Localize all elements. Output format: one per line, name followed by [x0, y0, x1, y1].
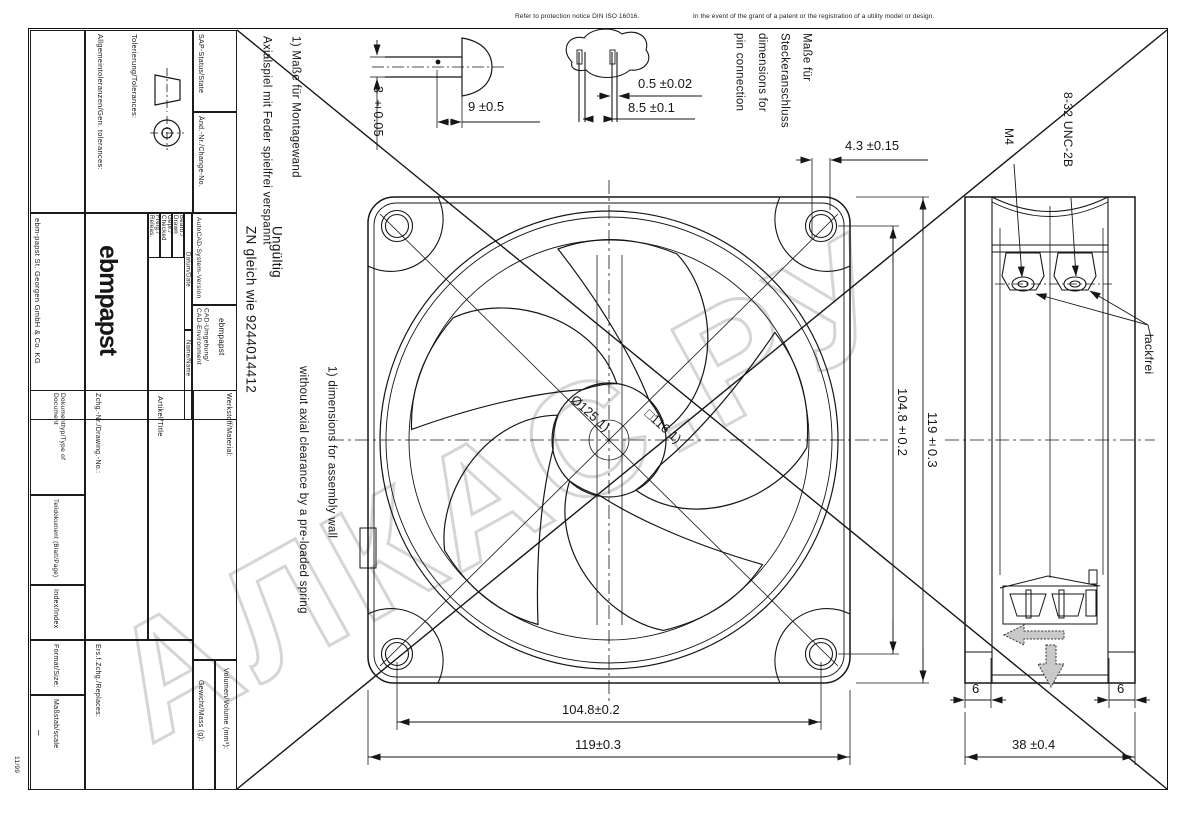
article-label: Artikel/Title [156, 396, 165, 466]
part-doc-label: Teildokument (Blatt/Page) [52, 499, 59, 583]
dim-pin-offset: 4.3 ±0.15 [845, 138, 899, 153]
label-paint-free: lackfrei [1142, 334, 1156, 394]
date-label: Datum/Date [185, 252, 191, 296]
note-connector: Maße für Steckeranschluss dimensions for… [728, 33, 818, 183]
change-no-label: Änd.-Nr./Change-No. [197, 116, 204, 211]
dim-hole-pitch-vertical: 104.8±0.2 [895, 388, 910, 548]
gen-tolerances-label: Allgemeintoleranzen/Gen. tolerances: [96, 34, 105, 194]
dim-hole-pitch-horizontal: 104.8±0.2 [562, 702, 620, 717]
format-label: Format/Size: [52, 644, 59, 692]
volume-label: Volumen/Volume (mm³): [222, 668, 229, 768]
mass-label: Gewicht/Mass (g): [197, 680, 204, 770]
drawing-sheet: АЛКАС.РУ [0, 0, 1200, 820]
label-thread-m4: M4 [1002, 128, 1016, 166]
checked-label: Gepr./ Checked [160, 215, 172, 259]
released-label: Freig./ Releas. [148, 215, 160, 259]
dim-screw-len: 9 ±0.5 [468, 99, 504, 114]
company-name: ebm-papst St. Georgen GmbH & Co. KG [33, 218, 42, 418]
tb-empty-cell [30, 30, 85, 213]
dim-size-vertical: 119±0.3 [925, 412, 940, 542]
dim-pin-spacing: 8.5 ±0.1 [628, 100, 675, 115]
scale-value: – [33, 730, 44, 760]
tb-article-cell [148, 390, 193, 640]
dim-flange-right: 6 [1117, 681, 1124, 696]
name-label: Name/Name [185, 340, 191, 384]
dim-pin-thickness: 0.5 ±0.02 [638, 76, 692, 91]
dim-depth: 38 ±0.4 [1012, 737, 1055, 752]
sap-status-label: SAP-Status/State [197, 34, 204, 110]
dim-size-horizontal: 119±0.3 [575, 737, 621, 752]
form-code: 11/99 [13, 756, 20, 790]
patent-notice: In the event of the grant of a patent or… [693, 13, 934, 20]
drawing-no-label: Zchg.-Nr./Drawing.-No.: [94, 393, 101, 489]
dim-flange-left: 6 [972, 681, 979, 696]
scale-label: Maßstab/scale [52, 699, 59, 761]
replaces-label: Ers.f.Zchg./Replaces: [94, 644, 101, 734]
protection-notice: Refer to protection notice DIN ISO 16016… [515, 13, 639, 20]
dim-screw-dia: 3 ±0.05 [371, 86, 385, 158]
cad-env-value: ebmpapst [217, 318, 226, 388]
cad-env-label: CAD-Umgebung/ CAD-Environment [195, 308, 209, 418]
drawn-label: Bearb./ Drawn [172, 215, 184, 259]
ebmpapst-logo: ebmpapst [93, 245, 122, 395]
cad-version-label: AutoCAD-System-Version [195, 217, 202, 303]
label-thread-unc: 8-32 UNC-2B [1061, 92, 1075, 204]
doc-type-label: Dokumenttyp/Type of Document [52, 393, 66, 493]
note-invalid: Ungültig ZN gleich wie 9244014412 [238, 226, 289, 436]
tb-replaces-cell [85, 640, 193, 790]
material-label: Werkstoff/Material: [225, 393, 232, 478]
note-mounting-en: 1) dimensions for assembly wall without … [288, 366, 346, 786]
index-label: Index/Index [52, 589, 59, 637]
tolerances-label: Tolerierung/Tolerances: [130, 34, 139, 184]
